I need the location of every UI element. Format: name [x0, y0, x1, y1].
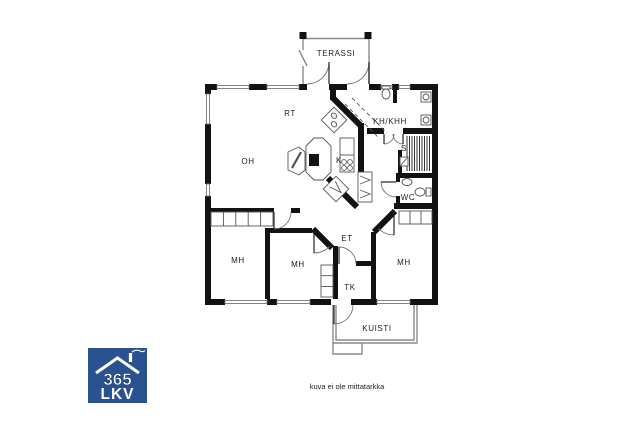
porch-step	[333, 343, 362, 354]
window	[217, 86, 249, 89]
window	[377, 301, 410, 304]
floor-plan-page: TERASSI RT OH K KH/KHH S WC ET MH MH MH …	[0, 0, 640, 427]
wc-door	[381, 182, 396, 197]
window	[225, 301, 267, 304]
toilet-icon	[382, 86, 390, 99]
room-label-mh-right: MH	[397, 258, 411, 267]
wardrobe-row	[399, 211, 432, 224]
room-label-mh-left: MH	[231, 256, 245, 265]
sauna-fan-door	[384, 134, 403, 144]
wardrobe-row	[211, 212, 273, 226]
window	[207, 94, 210, 124]
window	[277, 301, 310, 304]
disclaimer-text: kuva ei ole mittatarkka	[310, 382, 385, 391]
room-label-oh: OH	[241, 157, 254, 166]
room-label-rt: RT	[284, 109, 296, 118]
terrace-structure	[299, 32, 372, 84]
logo-graphic: 365 LKV	[88, 348, 147, 403]
tk-door	[339, 247, 356, 264]
terrace-door	[347, 62, 369, 84]
room-label-wc: WC	[401, 193, 416, 202]
room-label-kuisti: KUISTI	[362, 324, 391, 333]
window	[267, 86, 299, 89]
sauna-bench-hatch	[407, 136, 430, 171]
room-label-k: K	[336, 156, 342, 165]
agency-logo: 365 LKV	[88, 348, 147, 403]
sauna-stove-icon	[400, 157, 408, 166]
window	[207, 184, 210, 196]
wc-toilet-icon	[415, 188, 431, 196]
washing-machine-icon	[421, 115, 431, 125]
room-label-terassi: TERASSI	[317, 49, 355, 58]
room-label-tk: TK	[344, 283, 355, 292]
terrace-opening-mark	[299, 50, 307, 66]
bedroom-left-door	[274, 212, 291, 229]
shelf-column	[321, 265, 333, 297]
wc-sink-icon	[402, 179, 412, 186]
room-label-et: ET	[341, 234, 352, 243]
room-label-s: S	[401, 144, 407, 153]
room-label-kh-khh: KH/KHH	[373, 117, 407, 126]
porch-door	[334, 305, 353, 324]
room-label-mh-mid: MH	[291, 260, 305, 269]
window	[399, 86, 410, 89]
fireplace-icon	[288, 138, 331, 180]
logo-letters: LKV	[101, 386, 135, 403]
terrace-door	[307, 62, 329, 84]
washing-machine-icon	[421, 92, 431, 102]
